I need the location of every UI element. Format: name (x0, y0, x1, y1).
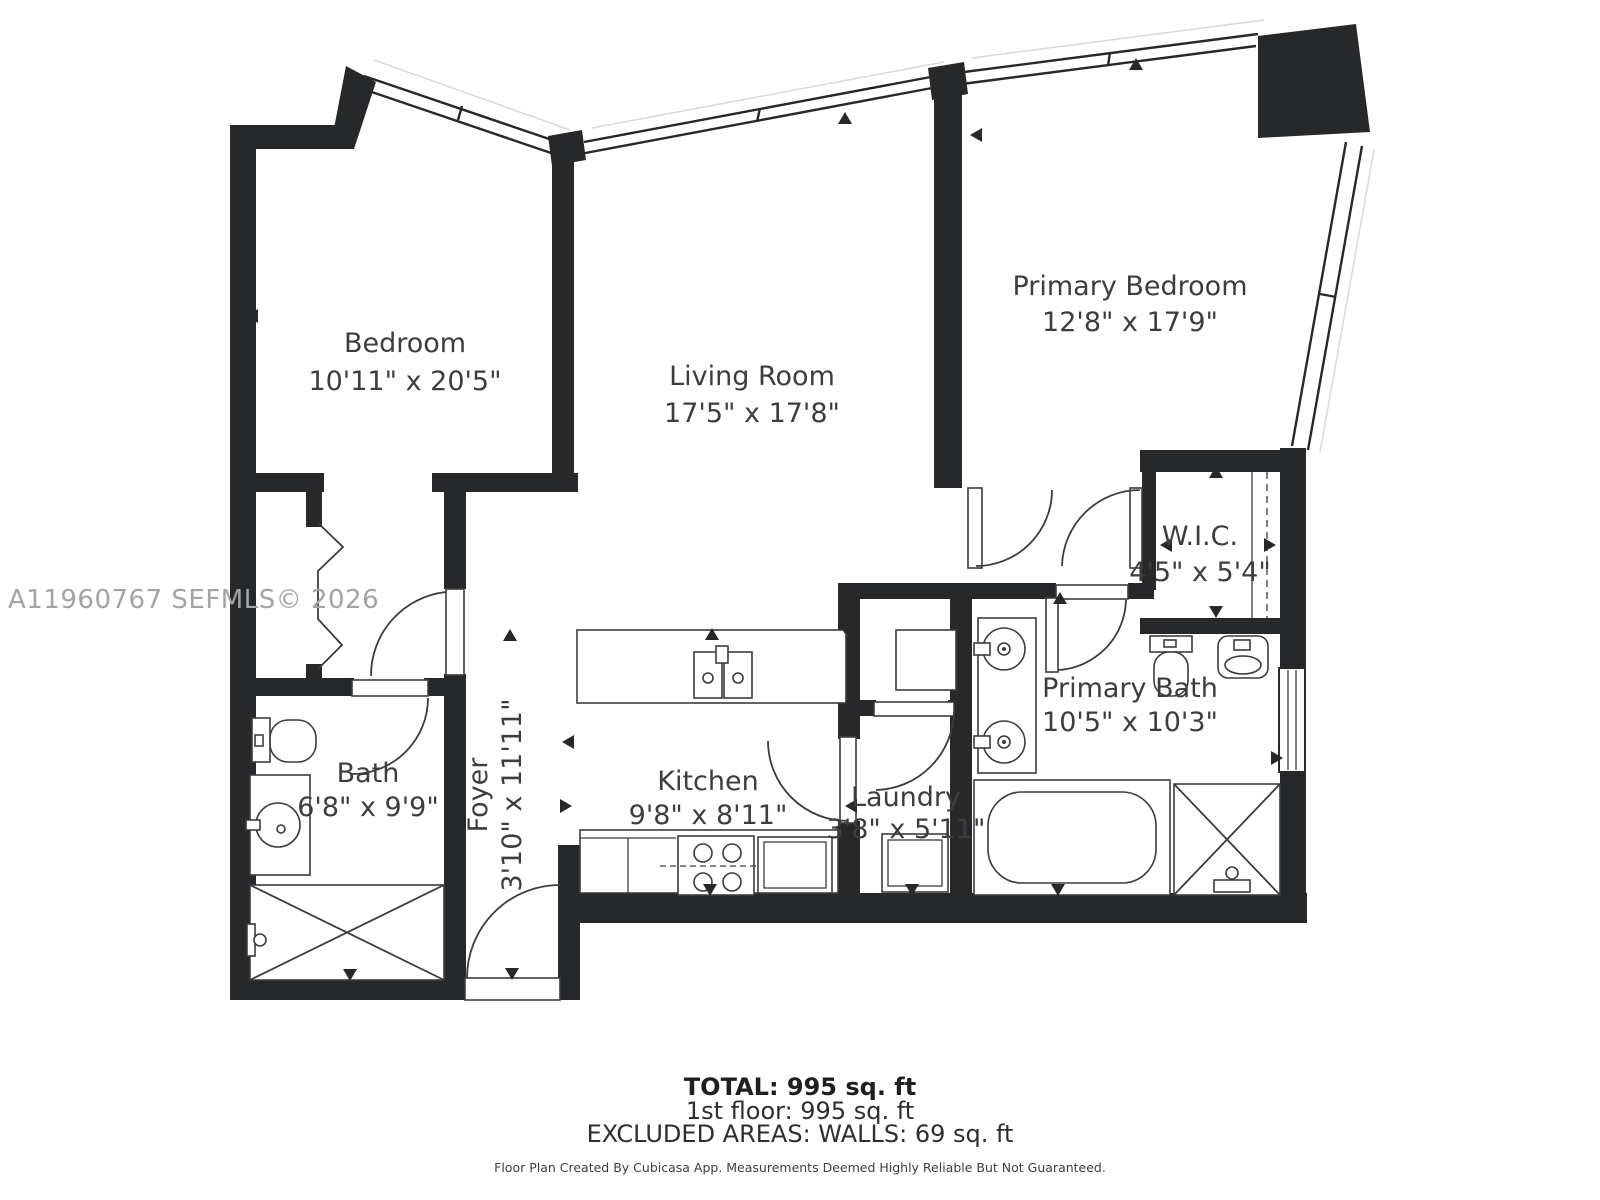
laundry-door-leaf (874, 702, 954, 716)
primary-bath-door-leaf (1046, 598, 1058, 672)
room-dims-primary-bath: 10'5" x 10'3" (1042, 707, 1218, 738)
entry-door-leaf (465, 978, 560, 1000)
floor-plan-page: Bedroom 10'11" x 20'5" Living Room 17'5"… (0, 0, 1600, 1200)
room-dims-wic: 4'5" x 5'4" (1129, 557, 1271, 588)
room-label-primary-bedroom: Primary Bedroom (1012, 271, 1247, 302)
room-dims-primary-bedroom: 12'8" x 17'9" (1042, 307, 1218, 338)
room-dims-laundry: 3'8" x 5'11" (827, 814, 986, 845)
bath-window (1279, 668, 1305, 772)
laundry-fixtures (882, 630, 956, 892)
room-label-primary-bath: Primary Bath (1042, 673, 1218, 704)
kitchen-fixtures (577, 630, 846, 895)
room-label-bath: Bath (337, 758, 400, 789)
room-dims-bath: 6'8" x 9'9" (297, 792, 439, 823)
room-label-living-room: Living Room (669, 361, 835, 392)
room-label-foyer: Foyer (463, 757, 494, 833)
bath-door-leaf (352, 680, 428, 696)
footer: TOTAL: 995 sq. ft 1st floor: 995 sq. ft … (494, 1073, 1106, 1175)
primary-bedroom-door-leaf (968, 488, 982, 568)
mls-watermark: A11960767 SEFMLS© 2026 (8, 585, 379, 615)
wic-door-leaf (1130, 488, 1142, 568)
water-heater-icon (896, 630, 956, 690)
room-dims-foyer: 3'10" x 11'11" (497, 698, 528, 891)
sink-icon (256, 803, 300, 847)
room-dims-kitchen: 9'8" x 8'11" (629, 800, 788, 831)
shower-valve-icon (1226, 867, 1238, 879)
room-label-kitchen: Kitchen (657, 766, 758, 797)
disclaimer-text: Floor Plan Created By Cubicasa App. Meas… (494, 1160, 1106, 1175)
room-label-wic: W.I.C. (1162, 521, 1238, 552)
floor-plan-drawing: Bedroom 10'11" x 20'5" Living Room 17'5"… (0, 0, 1600, 1200)
corridor-door-leaf (446, 589, 464, 675)
exterior-faint-lines (374, 20, 1374, 452)
room-label-laundry: Laundry (851, 782, 961, 813)
window-bands (360, 34, 1362, 450)
room-label-bedroom: Bedroom (344, 328, 466, 359)
primary-bath-door-opening (1056, 585, 1128, 599)
room-dims-bedroom: 10'11" x 20'5" (308, 366, 501, 397)
room-dims-living-room: 17'5" x 17'8" (664, 398, 840, 429)
primary-bath-fixtures (974, 618, 1280, 895)
excluded-area-text: EXCLUDED AREAS: WALLS: 69 sq. ft (587, 1120, 1014, 1148)
fridge-icon (758, 837, 832, 893)
